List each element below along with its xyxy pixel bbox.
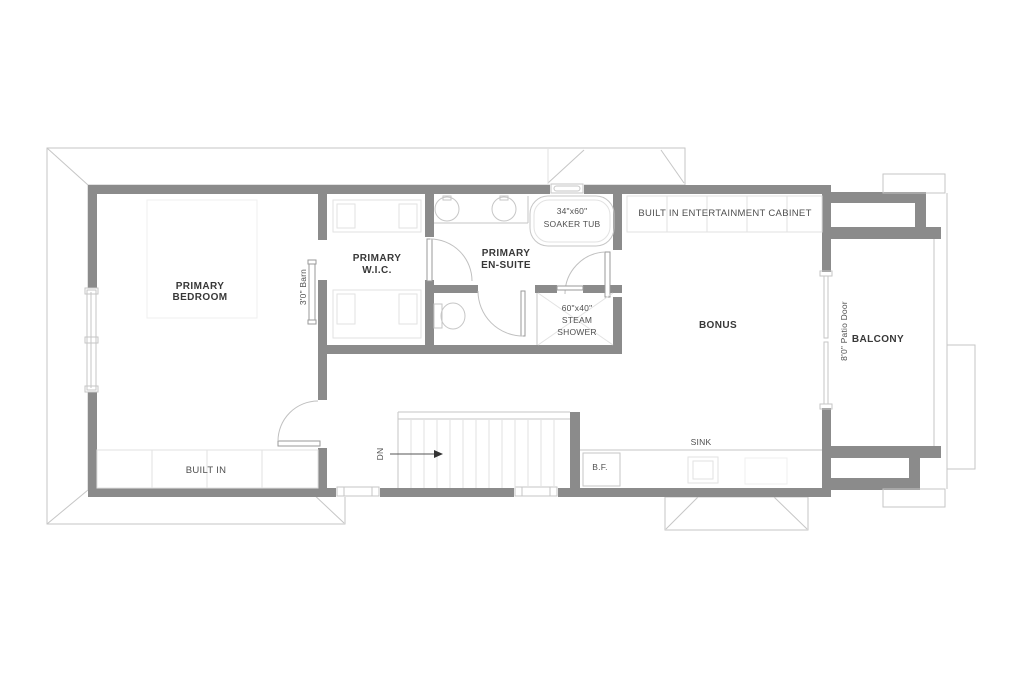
fixtures [97, 196, 822, 488]
wic-ensuite-door [427, 239, 472, 281]
balcony-label: BALCONY [852, 334, 904, 345]
ensuite-label-line1: PRIMARY [482, 248, 531, 259]
steam-shower-label-line2: STEAM [562, 315, 592, 325]
wic-label-line1: PRIMARY [353, 253, 402, 264]
bar-fridge-label: B.F. [592, 462, 607, 472]
window-bottom-right [514, 486, 558, 497]
primary-bedroom-label-line1: PRIMARY [176, 281, 225, 292]
fixture-labels: 34"x60" SOAKER TUB 60"x40" STEAM SHOWER … [186, 206, 849, 476]
wic-closet-top [333, 200, 421, 232]
built-in-label: BUILT IN [186, 465, 227, 476]
balcony-side-overhang [947, 345, 975, 469]
steam-shower-label-line3: SHOWER [557, 327, 596, 337]
soaker-tub-label-line1: 34"x60" [557, 206, 588, 216]
stairs [390, 412, 570, 488]
window-left [85, 288, 98, 392]
floor-plan-page: PRIMARY BEDROOM PRIMARY W.I.C. PRIMARY E… [0, 0, 1024, 682]
vanity-sinks [434, 196, 528, 223]
wet-bar-counter [580, 450, 822, 486]
patio-door [820, 271, 832, 409]
patio-door-label: 8'0" Patio Door [839, 301, 849, 361]
window-bottom-left [336, 486, 380, 497]
barn-door [308, 260, 316, 324]
roof-lower-right [665, 497, 808, 530]
sink-label: SINK [691, 437, 712, 447]
soaker-tub-label-line2: SOAKER TUB [544, 219, 601, 229]
wic-closet-bottom [333, 290, 421, 338]
shower-door [557, 286, 583, 290]
steam-shower-label-line1: 60"x40" [562, 303, 593, 313]
stairs-dn-label: DN [375, 448, 385, 461]
wic-label-line2: W.I.C. [362, 265, 392, 276]
window-top [550, 183, 584, 194]
bedroom-door [278, 401, 320, 446]
water-closet-door [478, 291, 525, 336]
entertainment-cabinet-label: BUILT IN ENTERTAINMENT CABINET [638, 208, 811, 219]
ensuite-label-line2: EN-SUITE [481, 260, 531, 271]
stairs-direction-arrow [434, 450, 443, 458]
barn-door-label: 3'0" Barn [298, 269, 308, 305]
toilet [434, 303, 465, 329]
doors [278, 239, 610, 446]
room-labels: PRIMARY BEDROOM PRIMARY W.I.C. PRIMARY E… [172, 248, 904, 345]
floor-plan-drawing: PRIMARY BEDROOM PRIMARY W.I.C. PRIMARY E… [0, 0, 1024, 682]
bonus-label: BONUS [699, 320, 737, 331]
primary-bedroom-label-line2: BEDROOM [172, 292, 227, 303]
